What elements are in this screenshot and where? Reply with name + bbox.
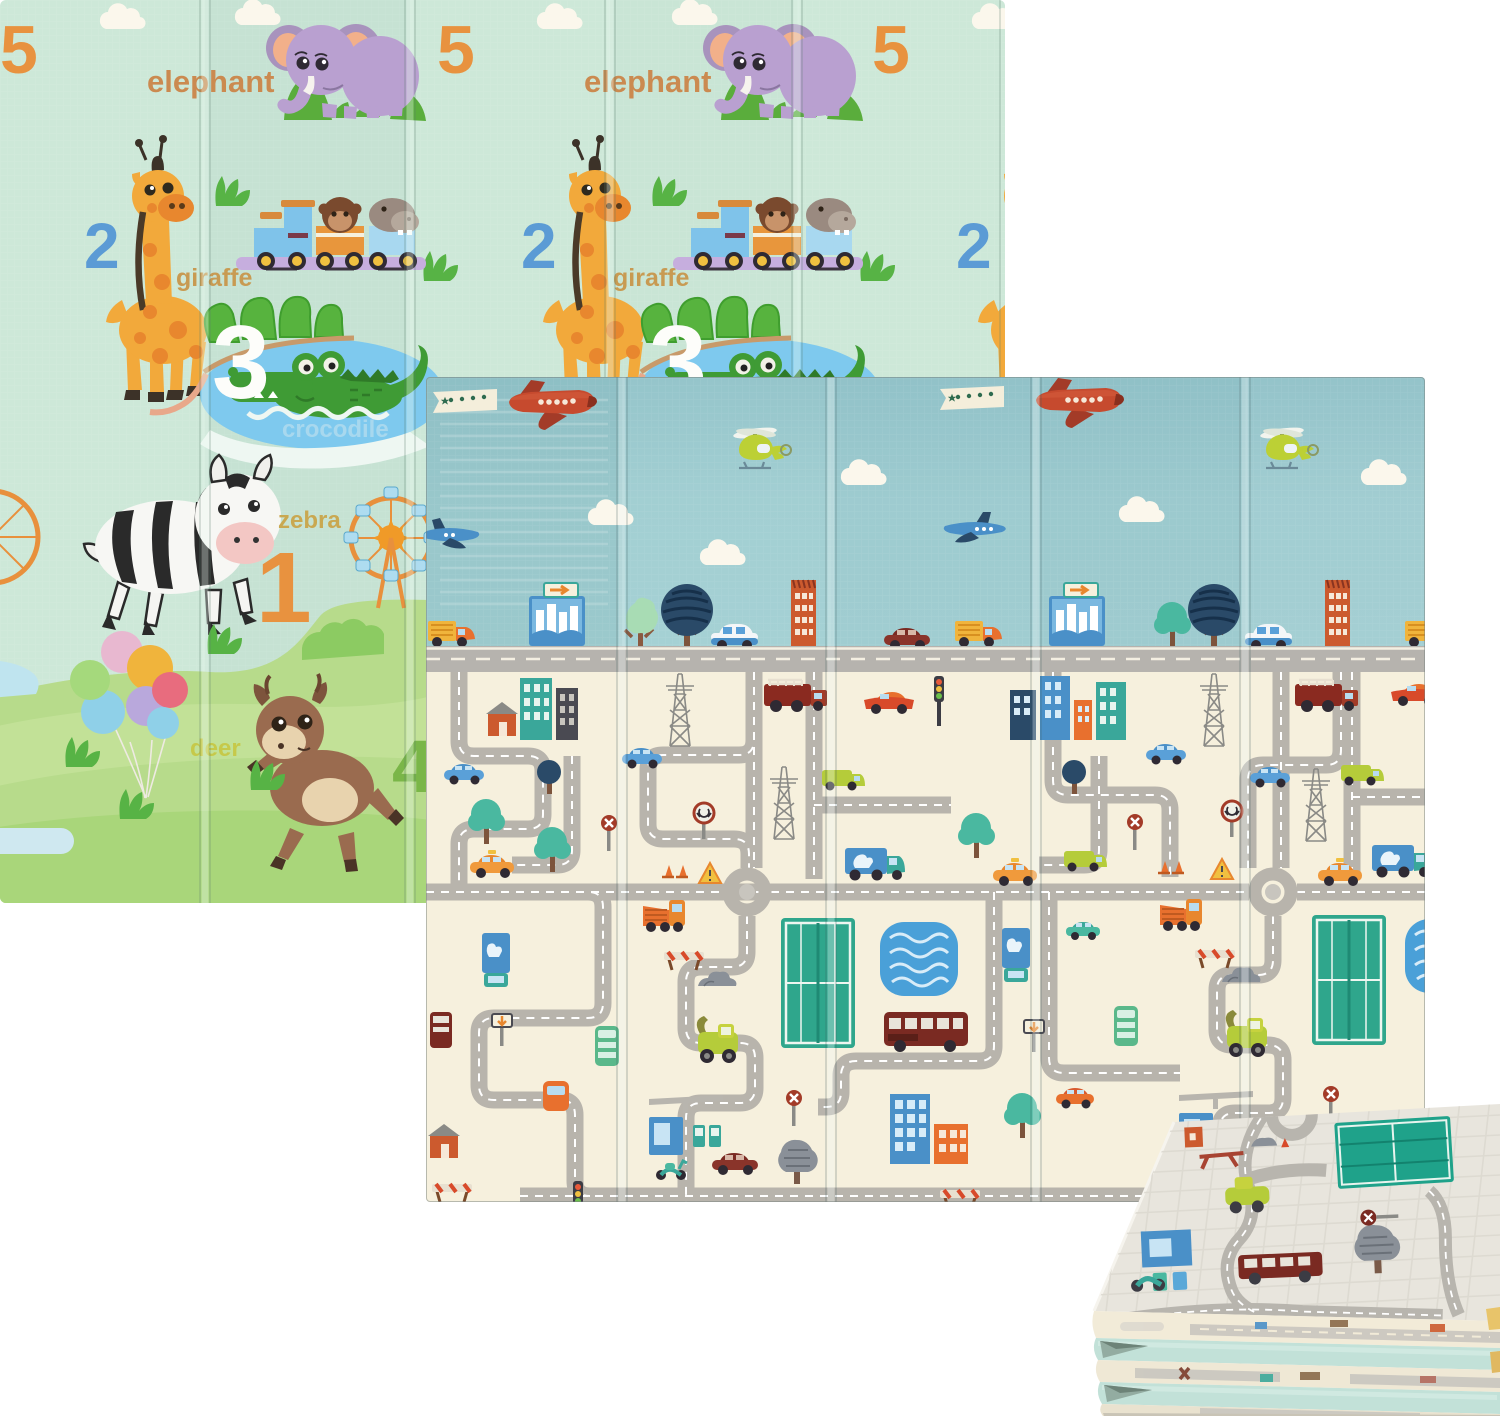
svg-text:zebra: zebra xyxy=(278,507,341,534)
svg-text:1: 1 xyxy=(256,532,312,644)
svg-text:deer: deer xyxy=(190,735,241,762)
